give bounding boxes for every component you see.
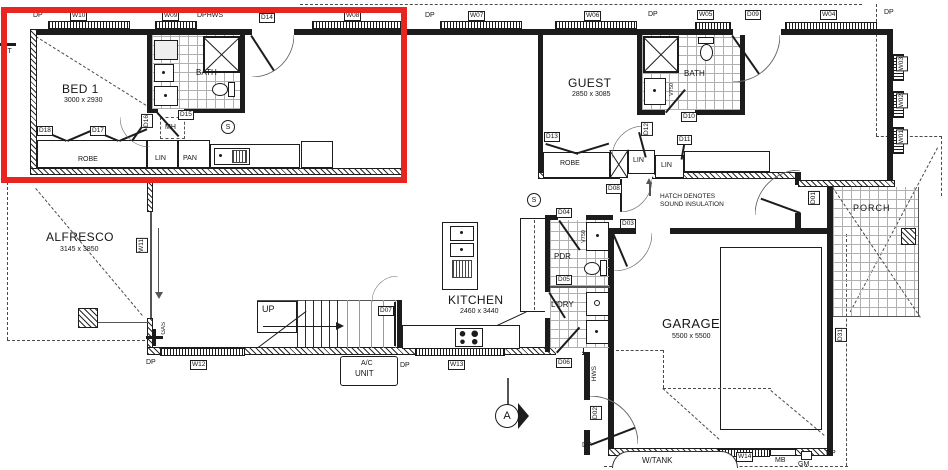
tag-d09: D09 xyxy=(745,10,761,20)
ldry-sink-dot xyxy=(595,330,598,333)
tag-d07: D07 xyxy=(378,306,394,316)
tag-d06: D06 xyxy=(556,358,572,368)
window-w12 xyxy=(160,348,245,356)
stacker-arrow-line xyxy=(158,228,159,292)
tag-d12: D12 xyxy=(641,122,653,136)
label-wtank: W/TANK xyxy=(642,457,673,465)
window-w13 xyxy=(415,348,505,356)
door-arc-d12 xyxy=(612,126,644,158)
tag-w07: W07 xyxy=(468,11,485,21)
label-dp-4: DP xyxy=(884,9,894,17)
tag-d08: D08 xyxy=(606,184,622,194)
tag-w01: W01 xyxy=(896,129,908,144)
pdr-vanity-size: V750 xyxy=(580,230,588,243)
island-drainer xyxy=(452,260,472,278)
bath2-label: BATH xyxy=(684,70,705,78)
room-label-kitchen: KITCHEN xyxy=(448,293,503,307)
garage-car-space xyxy=(720,247,822,430)
tag-d05: D05 xyxy=(556,275,572,285)
tag-d31: D31 xyxy=(835,328,847,342)
door-arc-d09 xyxy=(733,35,780,82)
island-sink-2-dot xyxy=(460,248,463,251)
door-leaf-d07 xyxy=(394,302,396,346)
gas-cross-v xyxy=(153,329,156,346)
room-dims-alfresco: 3145 x 3850 xyxy=(60,246,99,253)
porch-label: PORCH xyxy=(853,204,891,212)
ldry-tub-dot xyxy=(594,300,600,306)
porch-post xyxy=(901,228,916,245)
gas-meter xyxy=(801,451,812,460)
window-w05 xyxy=(695,22,731,30)
tag-d03: D03 xyxy=(620,219,636,229)
room-label-alfresco: ALFRESCO xyxy=(46,230,114,244)
label-mb: MB xyxy=(775,457,786,465)
tag-d04: D04 xyxy=(556,208,572,218)
section-line xyxy=(507,378,509,406)
highlight-rectangle xyxy=(1,7,407,183)
tag-w05: W05 xyxy=(697,10,714,20)
tag-w11: W11 xyxy=(136,238,148,253)
robe2-label: ROBE xyxy=(560,160,580,168)
bath2-vanity-dot xyxy=(653,89,656,92)
ac-unit-line2: UNIT xyxy=(355,370,374,378)
tag-d11: D11 xyxy=(677,135,692,145)
label-dp-8: DP xyxy=(826,450,836,458)
section-marker-arrow xyxy=(518,403,529,429)
garage-dash-2 xyxy=(663,350,664,388)
door-arc-d02 xyxy=(590,396,638,444)
door-arc-d07 xyxy=(372,276,398,302)
room-dims-kitchen: 2460 x 3440 xyxy=(460,308,499,315)
porch-edge-bottom xyxy=(833,316,919,317)
pdr-vanity-dot xyxy=(596,234,599,237)
room-dims-garage: 5500 x 5500 xyxy=(672,333,711,340)
tag-w03: W03 xyxy=(896,56,908,71)
door-arc-d01 xyxy=(755,170,800,215)
pdr-toilet-bowl xyxy=(584,262,600,275)
stair-up-label: UP xyxy=(262,305,275,313)
label-dp-6: DP xyxy=(400,362,410,370)
stair-arrow-line xyxy=(263,326,337,327)
bath2-toilet-cistern xyxy=(698,37,714,44)
tag-w06: W06 xyxy=(584,11,601,21)
smoke-detector-2-letter: S xyxy=(532,197,537,204)
ac-unit-line1: A/C xyxy=(361,360,373,368)
stair-arrow-head xyxy=(336,322,344,330)
tag-d10: D10 xyxy=(681,112,697,122)
kitchen-cooktop xyxy=(455,328,483,347)
tag-w04: W04 xyxy=(820,10,837,20)
alfresco-post xyxy=(78,308,98,328)
water-tank xyxy=(612,451,738,468)
section-marker-letter: A xyxy=(503,410,510,422)
label-hws: HWS xyxy=(591,366,599,381)
label-gm: GM xyxy=(798,461,809,469)
lin3-label: LIN xyxy=(661,162,672,170)
kitchen-bench-angle xyxy=(497,311,526,325)
boundary-bottom-alfresco xyxy=(7,340,145,341)
meter-box xyxy=(770,449,796,456)
label-dp-3: DP xyxy=(648,11,658,19)
bath2-toilet-bowl xyxy=(700,44,713,61)
room-label-garage: GARAGE xyxy=(662,316,720,331)
window-w06 xyxy=(555,21,637,29)
tag-d02: D02 xyxy=(590,406,602,420)
bath2-vanity-size: V750 xyxy=(668,83,676,96)
boundary-right-step xyxy=(876,136,942,137)
tag-w02: W02 xyxy=(896,93,908,108)
hatch-note-line2: SOUND INSULATION xyxy=(660,201,724,209)
island-sink-1-dot xyxy=(460,231,463,234)
tag-d13: D13 xyxy=(544,132,560,142)
hatch-note-arrow-head xyxy=(646,178,652,184)
floor-plan: BED 1 3000 x 2930 BATH ROBE LIN PAN MH S… xyxy=(0,0,948,470)
boundary-right-lower xyxy=(941,136,942,196)
hatch-note-arrow-line xyxy=(649,184,651,196)
boundary-top xyxy=(300,4,862,5)
window-w07 xyxy=(440,21,522,29)
pdr-label: PDR xyxy=(554,253,571,261)
tag-w13: W13 xyxy=(448,360,465,370)
tag-w12: W12 xyxy=(190,360,207,370)
garage-dash-3 xyxy=(663,388,771,389)
garage-dash-diag-1 xyxy=(662,388,719,440)
door-arc-d03 xyxy=(614,233,652,271)
window-w04 xyxy=(785,22,877,30)
pdr-toilet-cistern xyxy=(600,260,607,276)
label-dp-5: DP xyxy=(146,359,156,367)
room-dims-guest: 2850 x 3085 xyxy=(572,91,611,98)
room-label-guest: GUEST xyxy=(568,76,611,90)
lin2-label: LIN xyxy=(633,157,644,165)
porch-edge-right xyxy=(918,187,919,317)
wall-porch-top xyxy=(798,180,895,187)
section-marker: A xyxy=(495,404,519,428)
wall-living-west-upper xyxy=(147,178,153,212)
boundary-left-alfresco xyxy=(7,182,8,340)
ldry-label: L'DRY xyxy=(551,301,574,309)
garage-dash-1 xyxy=(616,350,663,351)
stacker-door-glass xyxy=(150,212,152,320)
smoke-detector-2: S xyxy=(527,193,541,207)
label-dp-2: DP xyxy=(425,12,435,20)
tag-w14: W14 xyxy=(736,452,753,462)
label-dp-7: DP xyxy=(582,442,592,450)
hatch-note-line1: HATCH DENOTES xyxy=(660,193,715,201)
label-gas: GAS xyxy=(160,322,168,335)
tag-d01: D01 xyxy=(808,191,820,205)
kitchen-tall-units-split xyxy=(534,220,535,310)
alfresco-edge xyxy=(98,322,148,323)
stacker-arrow-head xyxy=(155,292,163,299)
guest-bench xyxy=(684,151,770,172)
